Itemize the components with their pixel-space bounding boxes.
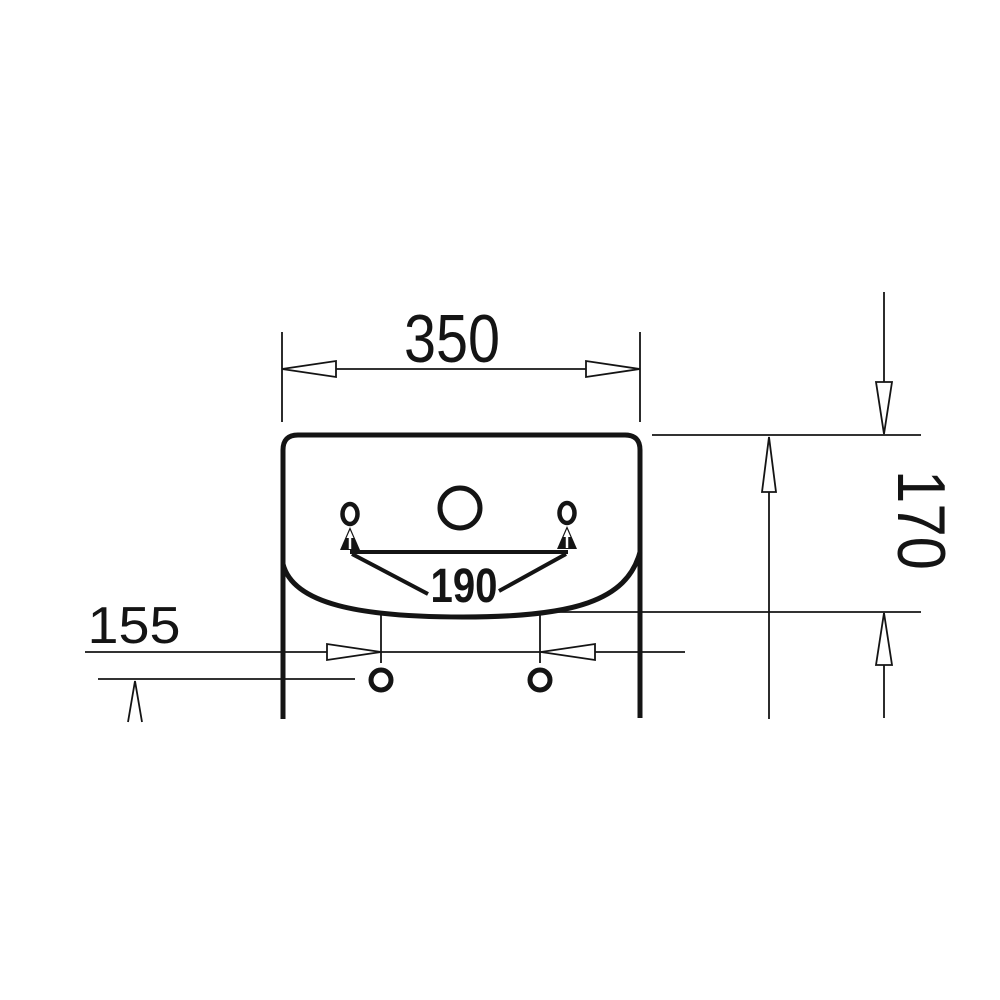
overflow-hole-right — [560, 503, 575, 523]
hole-spacing-label: 190 — [431, 560, 498, 613]
drawing-canvas: 190 350 170 155 — [0, 0, 1000, 1000]
overflow-hole-left — [343, 504, 358, 524]
height-arrow-up — [876, 613, 892, 665]
offset-arrow-left-pointing — [541, 644, 595, 660]
drawing-page: 190 350 170 155 — [0, 0, 1000, 1000]
width-label: 350 — [404, 301, 500, 377]
width-arrow-left — [282, 361, 336, 377]
offset-label: 155 — [88, 597, 181, 655]
overall-height-arrow-up — [762, 437, 776, 492]
width-arrow-right — [586, 361, 640, 377]
baseline-arrow-up — [128, 681, 142, 722]
fixing-hole-left — [371, 670, 391, 690]
height-label: 170 — [883, 470, 959, 570]
fixing-hole-right — [530, 670, 550, 690]
height-arrow-down — [876, 382, 892, 434]
hole-spacing-leader-left — [352, 554, 428, 594]
offset-arrow-right-pointing — [327, 644, 381, 660]
tap-hole-circle — [440, 488, 480, 528]
hole-spacing-leader-right — [499, 554, 566, 591]
